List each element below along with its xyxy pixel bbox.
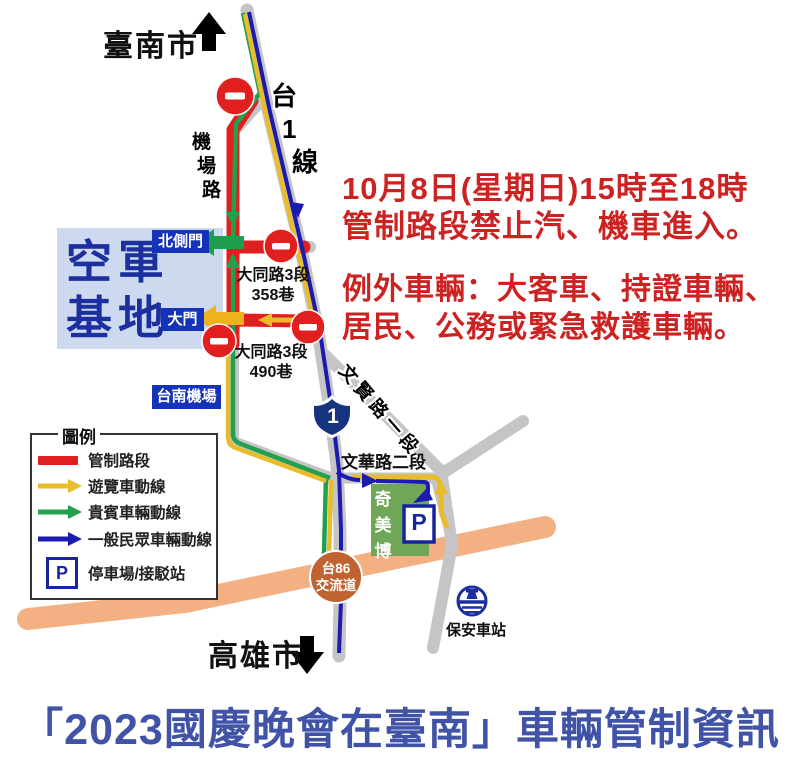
lane-358-line2: 358巷 — [252, 287, 295, 304]
label-char: 美 — [371, 513, 395, 539]
label-char: 1 — [282, 113, 318, 146]
no-entry-icon — [264, 229, 298, 263]
notice-line-2: 管制路段禁止汽、機車進入。 — [342, 201, 800, 246]
no-entry-icon — [202, 324, 236, 358]
highway-shield-number: 1 — [317, 405, 349, 429]
lane-358-line1: 大同路3段 — [237, 267, 310, 284]
legend-row-control: 管制路段 — [36, 449, 150, 471]
legend-label-vip: 貴賓車輛動線 — [88, 501, 181, 523]
bus-route-arrow-icon — [36, 476, 88, 496]
airport-road-label: 機場路 — [192, 131, 221, 203]
legend-row-vip: 貴賓車輛動線 — [36, 501, 181, 523]
legend-label-parking: 停車場/接駁站 — [88, 562, 185, 584]
traffic-control-map: 臺南市 高雄市 台1線 機場路 文賢路一段 文華路二段 10月8日(星期日)15… — [0, 0, 800, 777]
parking-swatch-letter: P — [46, 557, 78, 589]
interchange-line1: 台86 — [306, 560, 366, 577]
lane-490-line1: 大同路3段 — [235, 344, 308, 361]
lane-490-line2: 490巷 — [250, 364, 293, 381]
highway-1-label: 台1線 — [271, 80, 318, 179]
no-entry-icon — [216, 77, 254, 115]
legend-label-parking-icon-row: 一般民眾車輛動線 — [88, 528, 212, 550]
public-route-arrow-icon — [36, 529, 88, 549]
station-label: 保安車站 — [440, 619, 512, 640]
northeast-branch-road — [443, 421, 523, 473]
label-char: 機 — [192, 131, 221, 155]
vip-route-arrow-icon — [36, 502, 88, 522]
no-entry-icon — [291, 310, 325, 344]
label-char: 台 — [271, 80, 318, 113]
lane-490-label: 大同路3段 490巷 — [234, 343, 308, 383]
museum-label: 奇美博 — [371, 487, 395, 565]
legend-row-parking: P 停車場/接駁站 — [36, 557, 185, 589]
main-gate-sign: 大門 — [161, 308, 204, 331]
label-char: 場 — [197, 155, 221, 179]
label-char: 路 — [202, 179, 221, 203]
notice-line-4: 居民、公務或緊急救護車輛。 — [342, 302, 800, 346]
interchange-line2: 交流道 — [306, 577, 366, 594]
label-char: 奇 — [371, 487, 395, 513]
city-label-kaohsiung: 高雄市 — [208, 631, 304, 675]
control-section-swatch-icon — [36, 450, 88, 470]
legend-box: 圖例 管制路段 遊覽車動線 貴賓車輛動線 一般民眾車輛動線 — [30, 433, 218, 600]
lane-358-label: 大同路3段 358巷 — [236, 266, 310, 306]
parking-swatch-icon: P — [36, 557, 88, 589]
north-gate-sign: 北側門 — [152, 230, 209, 253]
airport-sign: 台南機場 — [152, 385, 221, 409]
airbase-label-line2: 基地 — [66, 290, 170, 346]
legend-title: 圖例 — [58, 423, 100, 448]
legend-label-control: 管制路段 — [88, 449, 150, 471]
legend-row-bus: 遊覽車動線 — [36, 475, 166, 497]
wenhua-road-label: 文華路二段 — [341, 448, 426, 473]
parking-mark: P — [404, 509, 434, 536]
city-label-tainan: 臺南市 — [103, 21, 199, 65]
train-station-icon — [458, 587, 486, 615]
label-char: 線 — [292, 146, 318, 179]
page-title: 「2023國慶晚會在臺南」車輛管制資訊 — [0, 695, 800, 757]
map-drawing — [0, 0, 800, 777]
label-char: 博 — [371, 539, 395, 565]
legend-row-public: 一般民眾車輛動線 — [36, 528, 212, 550]
legend-label-bus: 遊覽車動線 — [88, 475, 166, 497]
interchange-label: 台86 交流道 — [306, 560, 366, 594]
